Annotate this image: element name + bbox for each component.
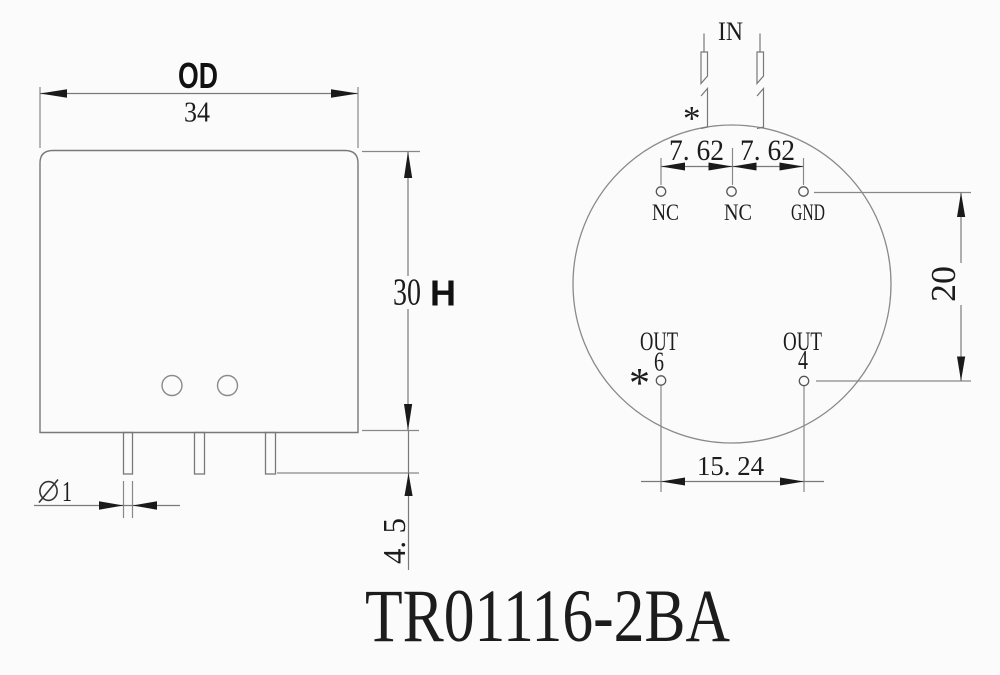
svg-text:30: 30	[393, 272, 421, 314]
svg-text:6: 6	[654, 347, 664, 377]
svg-text:4: 4	[798, 345, 808, 375]
svg-text:4. 5: 4. 5	[376, 518, 412, 564]
svg-text:NC: NC	[724, 200, 752, 225]
svg-text:*: *	[629, 361, 650, 407]
svg-text:NC: NC	[652, 200, 679, 225]
svg-text:*: *	[683, 99, 701, 138]
svg-text:7. 62: 7. 62	[740, 134, 795, 167]
svg-text:OD: OD	[178, 55, 218, 96]
svg-text:H: H	[430, 273, 456, 314]
svg-text:7. 62: 7. 62	[669, 134, 724, 167]
svg-text:20: 20	[924, 266, 963, 302]
svg-text:34: 34	[184, 97, 210, 129]
svg-text:GND: GND	[791, 200, 825, 225]
svg-text:IN: IN	[718, 17, 743, 46]
svg-text:15. 24: 15. 24	[697, 451, 764, 481]
svg-text:1: 1	[62, 476, 72, 508]
svg-text:TR01116-2BA: TR01116-2BA	[365, 575, 730, 658]
